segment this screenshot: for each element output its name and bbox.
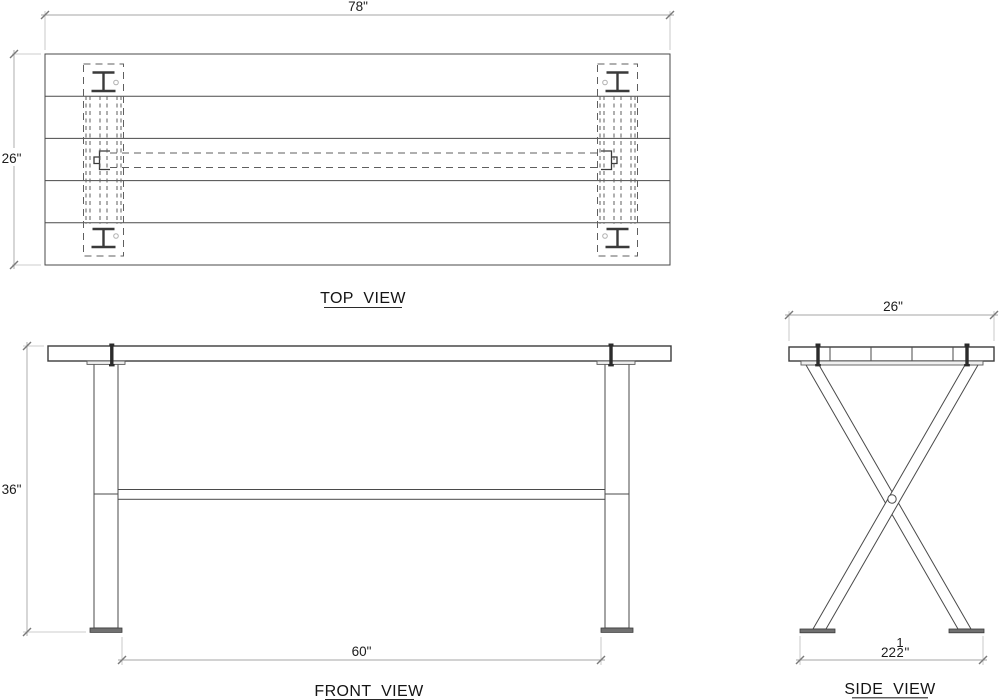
bolt-nut [608,364,614,366]
front-foot-right [601,628,633,632]
pivot-bolt-circle [888,495,896,503]
bolt-nut [964,364,970,366]
side-view-caption: SIDE VIEW [844,681,936,698]
dim-side-foot-span-unit: " [905,645,910,660]
dim-top-depth: 26" [0,50,41,269]
dim-side-width: 26" [785,299,998,341]
side-foot-right [949,629,984,633]
bolt-nut [109,364,115,366]
dim-top-width-value: 78" [348,0,368,14]
side-foot-left [800,629,835,633]
dim-top-depth-value: 26" [2,151,22,166]
front-stretcher [118,490,605,500]
dim-front-foot-span: 60" [118,637,605,665]
front-view-label: FRONT VIEW [314,683,424,700]
dim-side-foot-span: 22 1 2 " [796,635,987,665]
dim-side-foot-span-denominator: 2 [897,645,904,660]
top-view-label: TOP VIEW [320,290,406,307]
top-view-caption: TOP VIEW [320,290,406,308]
front-tabletop-slab [48,346,671,361]
dim-front-height-value: 36" [2,482,22,497]
drawing-sheet: 78" 26" TOP VIEW [0,0,1000,700]
side-view: 26" 22 1 2 " SIDE VIEW [785,299,998,698]
bolt-shank [965,344,968,366]
dim-front-foot-span-value: 60" [352,644,372,659]
front-mount-plate-right [597,361,635,364]
front-view-caption: FRONT VIEW [314,683,424,700]
top-view: 78" 26" TOP VIEW [0,0,674,308]
side-mount-plate [801,361,983,365]
bolt-nut [815,364,821,366]
bolt-shank [110,344,113,366]
dim-front-height: 36" [0,342,86,636]
front-foot-left [90,628,122,632]
side-tabletop-slab [789,347,994,361]
top-view-tabletop-outline [45,54,670,265]
bolt-shank [609,344,612,366]
dim-side-foot-span-whole: 22 [881,645,896,660]
bolt-shank [816,344,819,366]
dim-side-width-value: 26" [883,299,903,314]
table-drawing-svg: 78" 26" TOP VIEW [0,0,1000,700]
front-view: 36" 60" FRONT VIEW [0,342,671,700]
front-mount-plate-left [87,361,125,364]
dim-top-width: 78" [41,0,674,50]
side-view-label: SIDE VIEW [844,681,936,698]
